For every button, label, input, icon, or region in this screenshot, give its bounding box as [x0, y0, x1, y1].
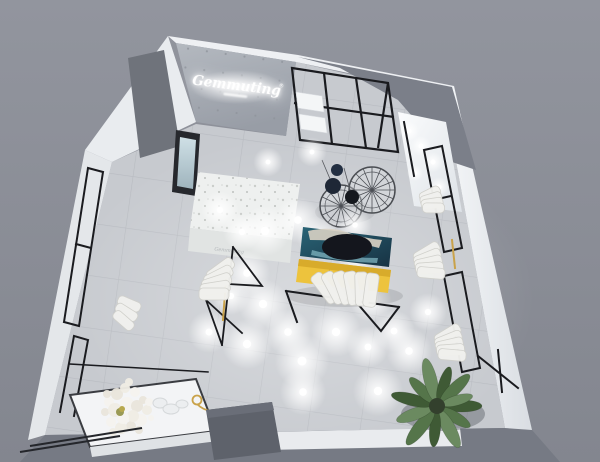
garment [199, 288, 229, 300]
art-dark-sculpture [322, 234, 372, 260]
light-core [243, 340, 251, 348]
garment [422, 203, 444, 213]
flower-petal [125, 378, 133, 386]
flower-petal [148, 415, 154, 421]
light-core [239, 229, 245, 235]
light-core [261, 227, 269, 235]
decor-disk [331, 164, 343, 176]
light-core [297, 356, 306, 365]
light-core [374, 387, 382, 395]
light-core [259, 300, 267, 308]
flower-petal [103, 390, 111, 398]
light-core [332, 328, 340, 336]
counter-sculpture [176, 400, 188, 408]
light-core [405, 347, 413, 355]
light-core [294, 216, 302, 224]
light-core [352, 222, 358, 228]
flower-petal [130, 387, 140, 397]
alcove-light-core [407, 129, 412, 134]
plant-pot [429, 398, 445, 414]
flower-petal [127, 410, 139, 422]
light-core [299, 388, 307, 396]
store-render-canvas: Gemmuting ® Gemmuting [0, 0, 600, 462]
storage-box [206, 402, 281, 460]
alcove-light-core [419, 144, 424, 149]
light-core [425, 309, 431, 315]
flower-petal [106, 417, 116, 427]
decor-disk [325, 178, 341, 194]
light-core [310, 150, 315, 155]
garment [438, 348, 467, 361]
flower-petal [101, 408, 109, 416]
garment [417, 266, 446, 279]
flower-petal [142, 405, 152, 415]
light-core [206, 329, 213, 336]
flower-center [119, 406, 125, 412]
wall-mirror [172, 130, 200, 196]
light-core [284, 328, 292, 336]
light-core [266, 160, 271, 165]
registered-mark: ® [278, 82, 284, 90]
store-render: Gemmuting ® Gemmuting [0, 0, 600, 462]
light-core [217, 207, 223, 213]
flower-petal [145, 398, 153, 406]
alcove-light-core [431, 160, 436, 165]
decor-disk [345, 190, 359, 204]
mirror-glass [177, 137, 196, 189]
light-core [365, 344, 372, 351]
